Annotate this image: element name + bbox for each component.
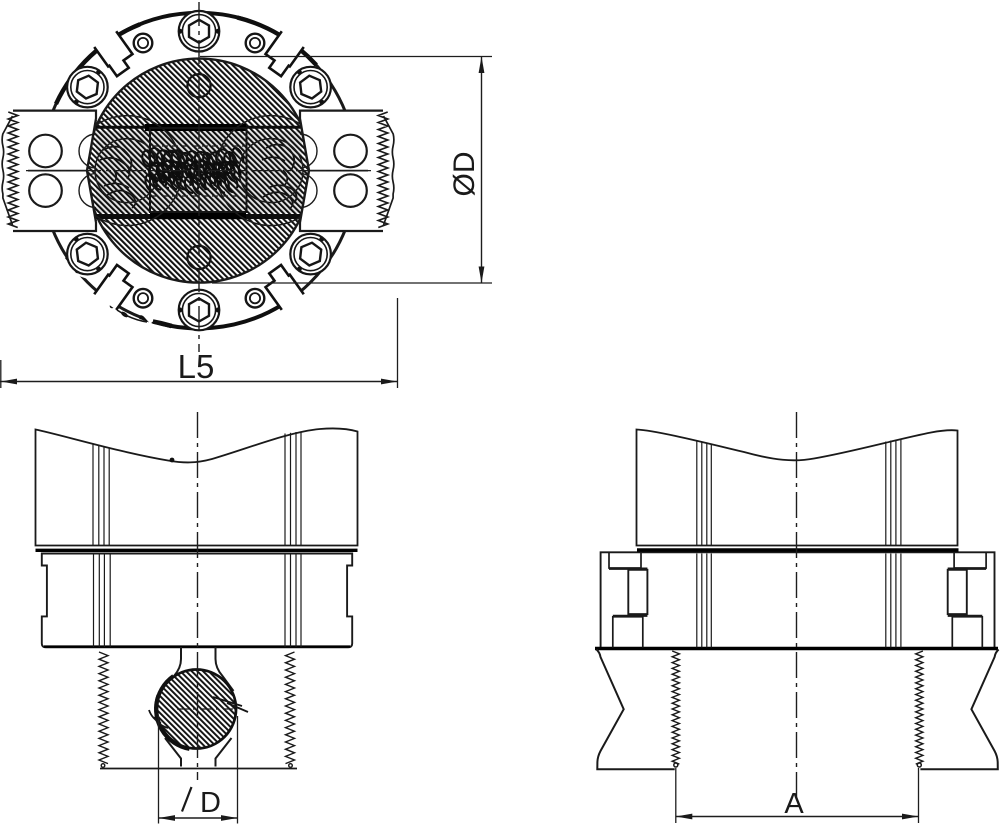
svg-text:L5: L5	[178, 348, 215, 385]
svg-text:A: A	[784, 788, 804, 820]
svg-text:D: D	[200, 787, 221, 819]
svg-text:ØD: ØD	[448, 152, 481, 197]
